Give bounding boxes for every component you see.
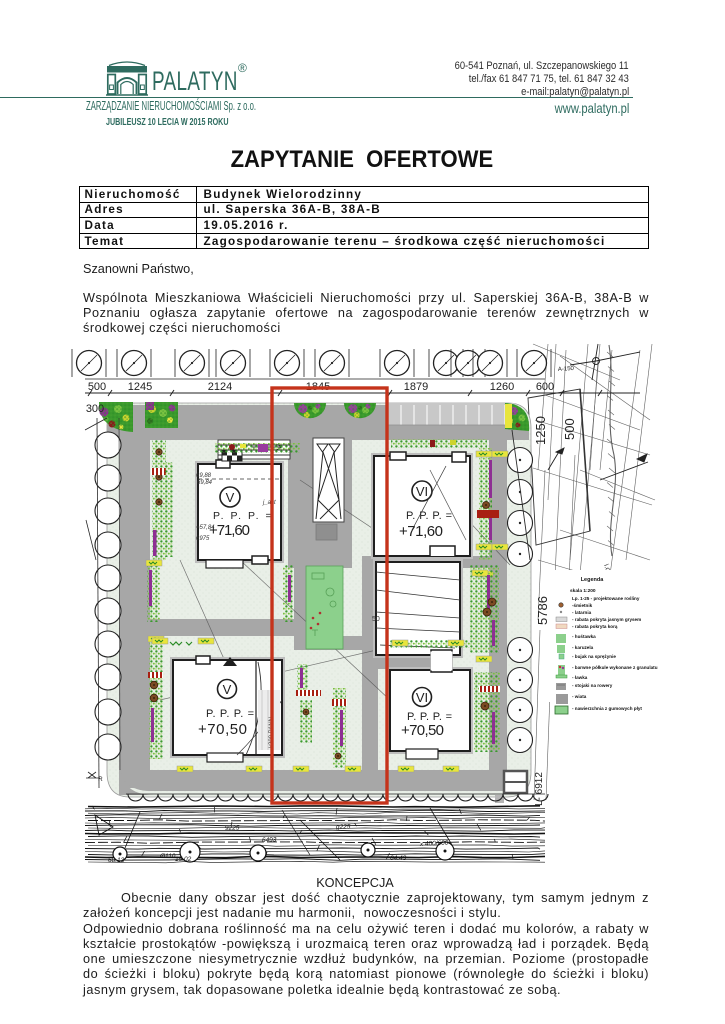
svg-text:5786: 5786 [535, 596, 550, 625]
svg-text:-śmietnik: -śmietnik [572, 603, 593, 608]
svg-text:50: 50 [372, 616, 380, 623]
svg-text:2124: 2124 [208, 381, 232, 393]
svg-text:64.43: 64.43 [390, 855, 407, 862]
svg-text:A-150: A-150 [558, 366, 575, 373]
svg-text:- karuzela: - karuzela [572, 645, 594, 650]
svg-text:300: 300 [86, 403, 104, 415]
svg-text:9225: 9225 [225, 824, 240, 832]
svg-text:- barwne półkule wykonane z gr: - barwne półkule wykonane z granulatu [572, 665, 658, 670]
svg-text:+71,60: +71,60 [399, 523, 443, 540]
svg-text:1260: 1260 [490, 381, 514, 393]
svg-text:+70,50: +70,50 [198, 721, 247, 738]
svg-text:j_ast: j_ast [262, 500, 276, 506]
svg-text:V: V [223, 682, 232, 697]
svg-text:- ławka: - ławka [572, 675, 588, 680]
svg-text:1245: 1245 [128, 381, 152, 393]
svg-text:- huśtawka: - huśtawka [572, 634, 596, 639]
svg-text:+71,60: +71,60 [209, 522, 250, 539]
svg-text:P. P. P. =: P. P. P. = [406, 510, 452, 522]
svg-text:V: V [226, 490, 235, 505]
svg-text:69,84: 69,84 [197, 480, 213, 486]
svg-text:- stojaki na rowery: - stojaki na rowery [572, 683, 613, 688]
svg-text:Ø110: Ø110 [159, 853, 176, 860]
svg-text:- nawierzchnia z gumowych płyt: - nawierzchnia z gumowych płyt [572, 706, 642, 711]
svg-text:68.13: 68.13 [108, 857, 125, 864]
svg-text:P. P. P. =: P. P. P. = [213, 510, 274, 522]
svg-text:- bujak na sprężynie: - bujak na sprężynie [572, 654, 616, 659]
svg-text:- latarnia: - latarnia [572, 610, 592, 615]
svg-text:Legenda: Legenda [581, 577, 605, 583]
svg-text:15.02: 15.02 [175, 856, 192, 863]
svg-text:6975: 6975 [196, 536, 210, 542]
svg-text:P. P. P. =: P. P. P. = [206, 708, 254, 720]
svg-text:6493: 6493 [262, 836, 277, 844]
svg-text:1250: 1250 [533, 416, 548, 445]
svg-text:600: 600 [536, 381, 554, 393]
svg-text:VI: VI [416, 484, 428, 499]
svg-text:- rabata pokryta korą: - rabata pokryta korą [572, 624, 618, 629]
svg-text:1879: 1879 [404, 381, 428, 393]
svg-text:=57,84: =57,84 [196, 525, 215, 531]
svg-text:R: R [98, 776, 103, 783]
svg-text:Lp. 1-25 - projektowane roślin: Lp. 1-25 - projektowane rośliny [572, 596, 640, 601]
svg-text:- rabata pokryta jasnym grysem: - rabata pokryta jasnym grysem [572, 617, 641, 622]
svg-text:69,88: 69,88 [196, 473, 212, 479]
svg-text:VI: VI [416, 690, 428, 705]
svg-text:500: 500 [88, 381, 106, 393]
svg-text:500: 500 [562, 418, 577, 440]
svg-text:g225: g225 [336, 823, 351, 831]
svg-text:skala 1:200: skala 1:200 [570, 588, 596, 594]
svg-text:+70,50: +70,50 [401, 722, 444, 739]
svg-text:- wiata: - wiata [572, 694, 587, 699]
